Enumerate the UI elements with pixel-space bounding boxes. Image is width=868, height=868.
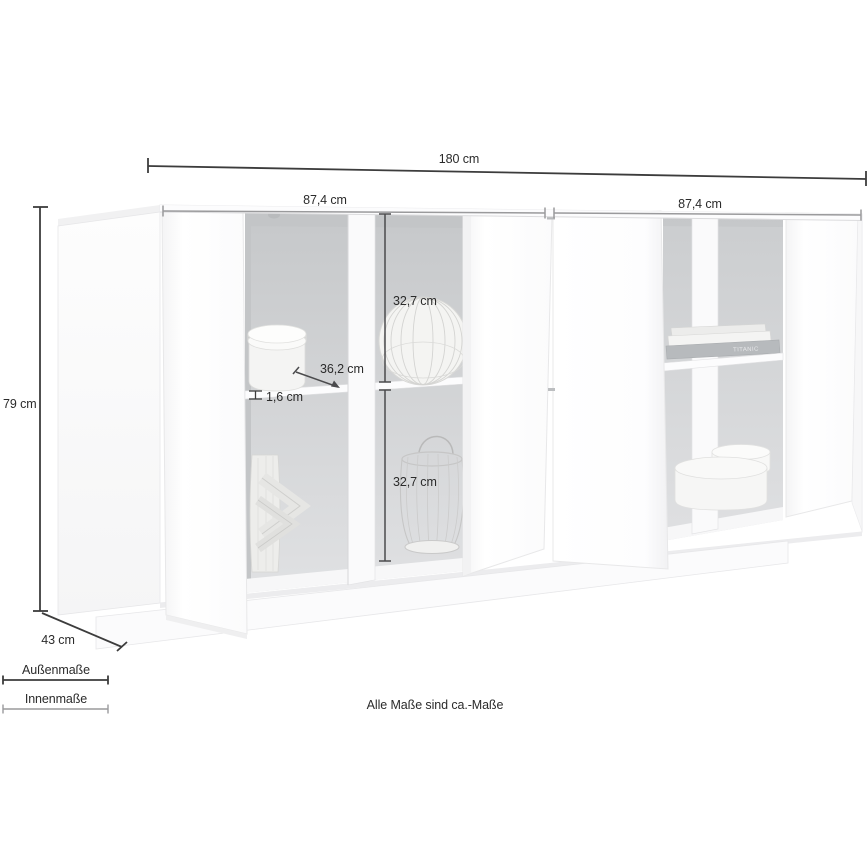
furniture-dimension-diagram: TITANIC xyxy=(0,0,868,868)
door-far-right xyxy=(786,213,858,517)
label-shelf-thickness: 1,6 cm xyxy=(266,390,303,404)
side-panel xyxy=(58,212,160,615)
right-compartment: TITANIC xyxy=(663,214,783,541)
dim-line-outer-width xyxy=(148,166,866,179)
label-inner-height-lower: 32,7 cm xyxy=(393,475,437,489)
label-outer-height: 79 cm xyxy=(3,397,37,411)
left-compartment-divider xyxy=(348,214,375,585)
diagram-canvas: TITANIC xyxy=(0,0,868,868)
sideboard-illustration: TITANIC xyxy=(58,205,862,649)
measurement-note: Alle Maße sind ca.-Maße xyxy=(367,698,504,712)
decor-round-box xyxy=(248,325,306,391)
legend-outer-label: Außenmaße xyxy=(22,663,90,677)
decor-books: TITANIC xyxy=(666,324,780,359)
door-far-left xyxy=(162,208,247,634)
label-inner-width-right: 87,4 cm xyxy=(678,197,722,211)
label-inner-height-upper: 32,7 cm xyxy=(393,294,437,308)
hinge-middle xyxy=(548,388,555,391)
legend: Außenmaße Innenmaße xyxy=(3,663,108,714)
book-spine-label: TITANIC xyxy=(733,347,759,354)
label-inner-width-left: 87,4 cm xyxy=(303,193,347,207)
door-center-right-open xyxy=(553,211,668,569)
decor-honeycomb-ball xyxy=(379,297,467,385)
door-center-left-open xyxy=(463,211,552,576)
legend-inner-label: Innenmaße xyxy=(25,692,87,706)
label-inner-depth: 36,2 cm xyxy=(320,362,364,376)
label-outer-depth: 43 cm xyxy=(41,633,75,647)
door-center-left-edge xyxy=(463,211,471,576)
label-outer-width: 180 cm xyxy=(439,152,479,166)
